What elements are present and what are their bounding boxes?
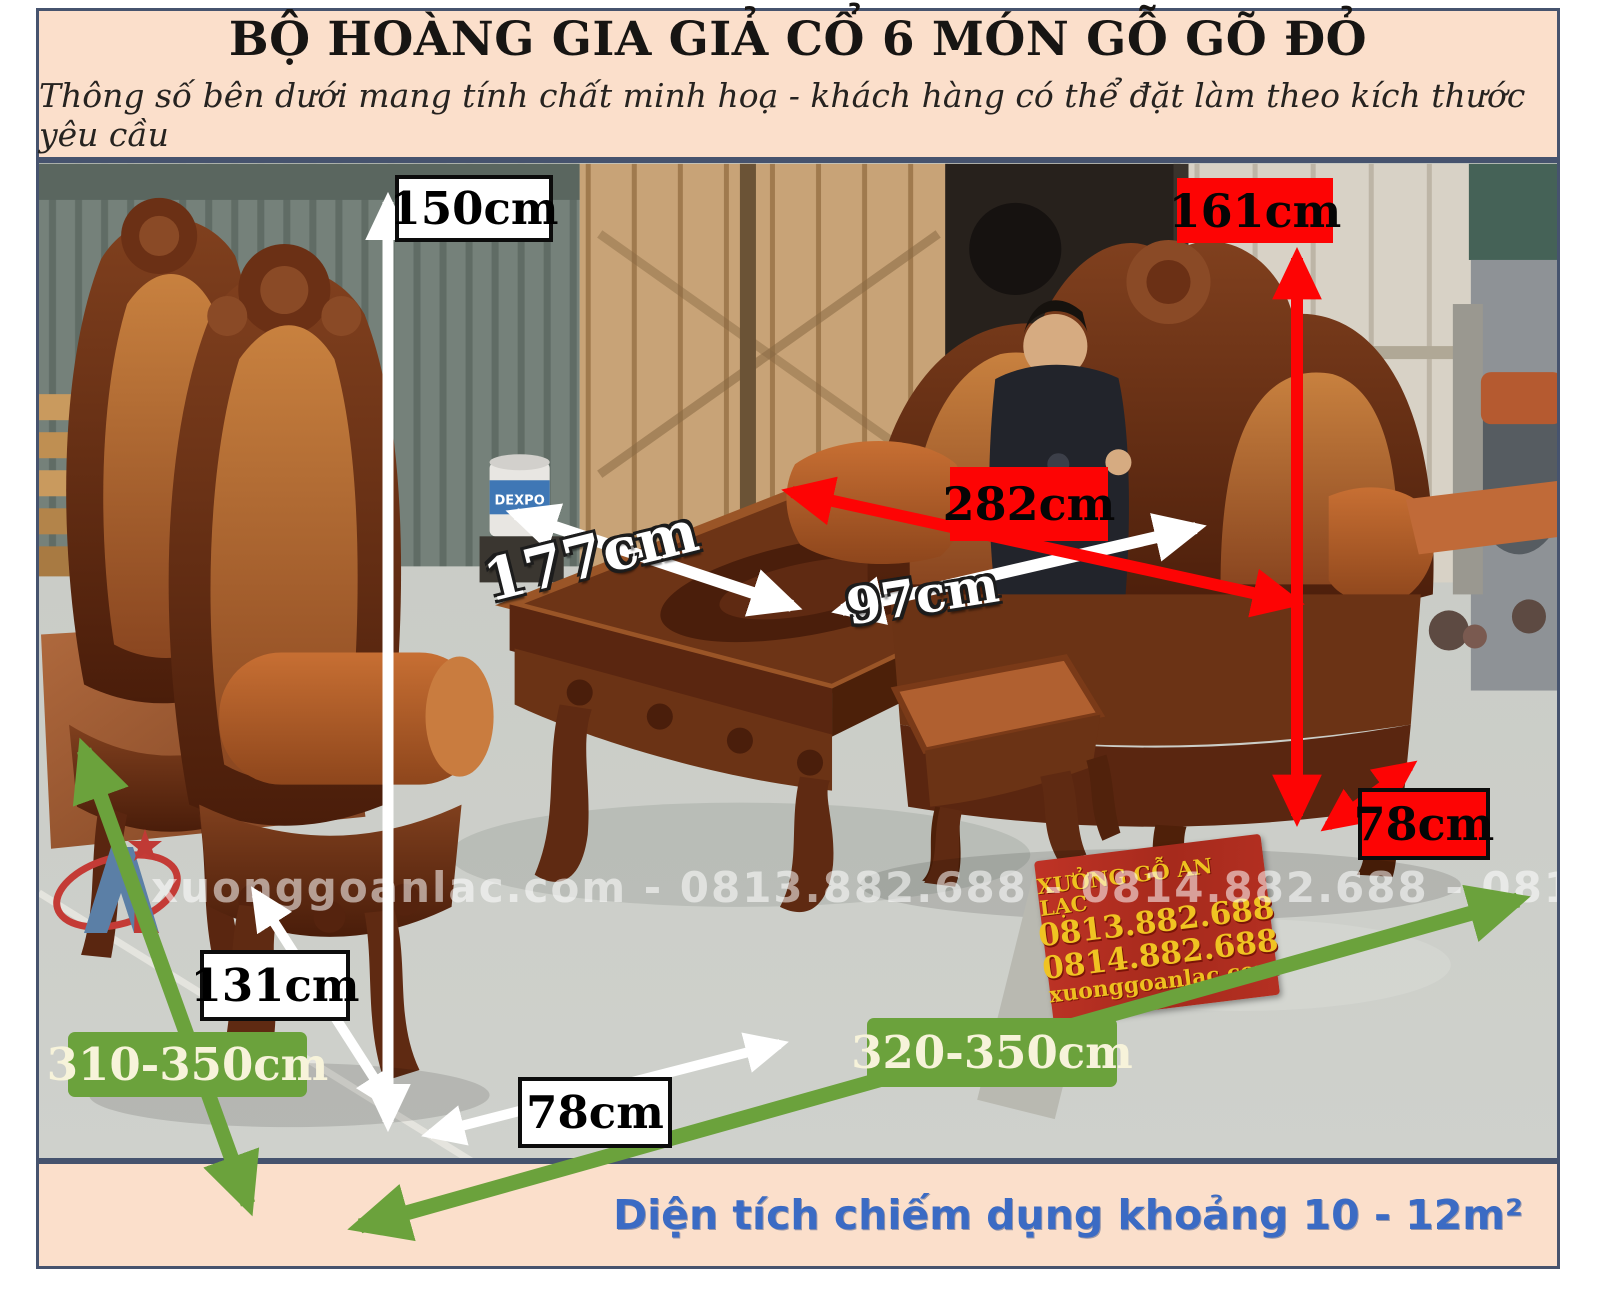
chair-depth-label: 131cm — [200, 950, 350, 1021]
space-depth-label: 310-350cm — [68, 1032, 307, 1097]
bucket-label: DEXPO — [494, 493, 544, 508]
chair-height-label: 150cm — [395, 175, 553, 242]
header-panel: BỘ HOÀNG GIA GIẢ CỔ 6 MÓN GỖ GÕ ĐỎ Thông… — [36, 8, 1560, 160]
space-width-label: 320-350cm — [867, 1018, 1117, 1087]
seat-height-label: 78cm — [1358, 788, 1490, 860]
furniture-poster: BỘ HOÀNG GIA GIẢ CỔ 6 MÓN GỖ GÕ ĐỎ Thông… — [0, 0, 1597, 1299]
shop-sign: XƯỞNG GỖ AN LẠC 0813.882.688 0814.882.68… — [1034, 834, 1280, 1023]
sofa-width-label: 282cm — [950, 467, 1108, 541]
sofa-height-label: 161cm — [1177, 178, 1333, 243]
chair-width-label: 78cm — [518, 1077, 672, 1148]
area-note: Diện tích chiếm dụng khoảng 10 - 12m² — [613, 1191, 1523, 1239]
poster-subtitle: Thông số bên dưới mang tính chất minh ho… — [39, 76, 1557, 154]
footer-panel: Diện tích chiếm dụng khoảng 10 - 12m² — [36, 1161, 1560, 1269]
poster-title: BỘ HOÀNG GIA GIẢ CỔ 6 MÓN GỖ GÕ ĐỎ — [229, 14, 1367, 66]
watermark-text: xuonggoanlac.com - 0813.882.688 - 0814.8… — [151, 863, 1560, 912]
